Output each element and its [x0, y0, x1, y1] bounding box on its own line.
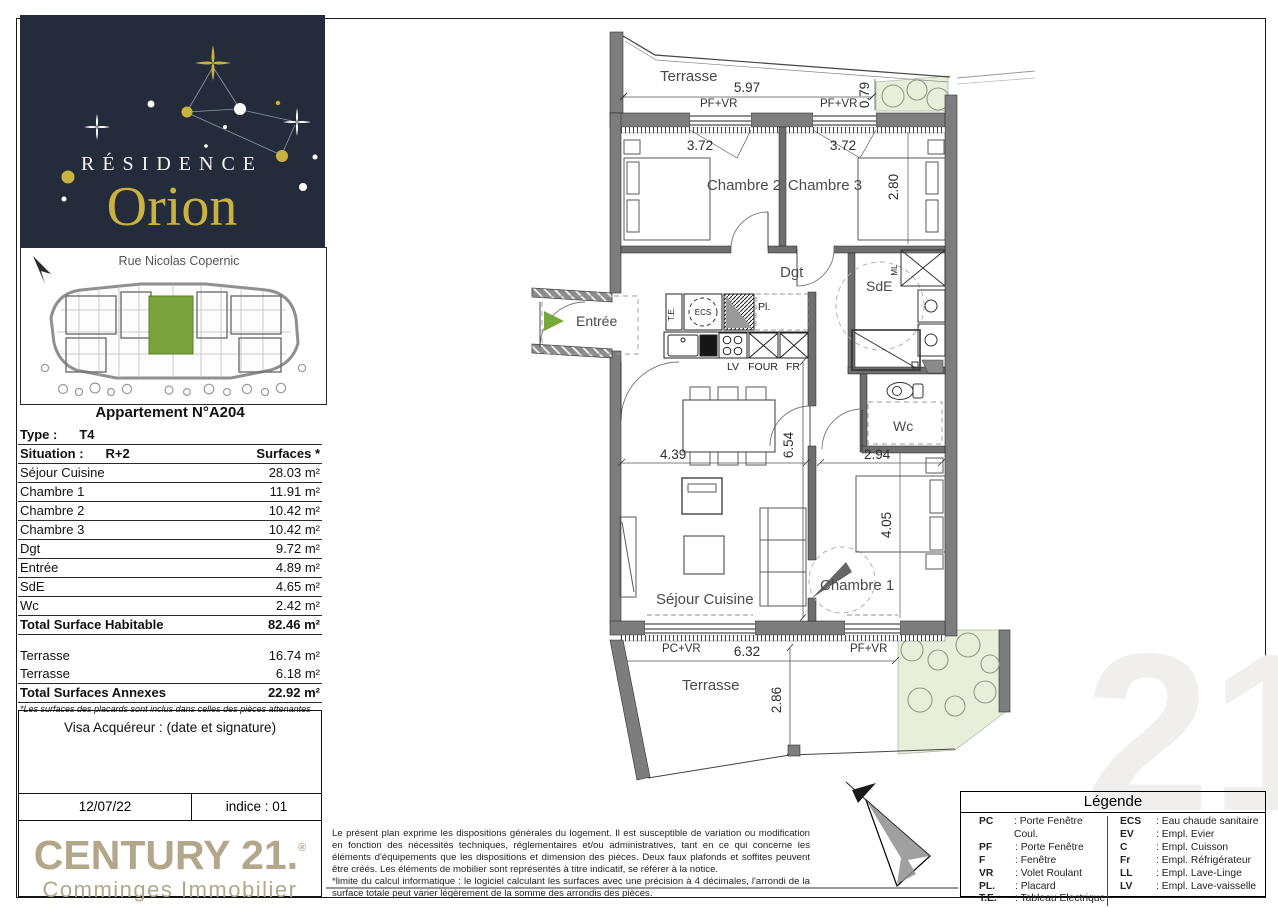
legend-abbr: ECS	[1120, 816, 1156, 829]
window-sill-bottom	[621, 635, 945, 641]
legend-desc: : Empl. Lave-vaisselle	[1156, 881, 1256, 894]
equipment-label-four: FOUR	[748, 361, 778, 373]
dim-lines	[618, 358, 945, 621]
legend-desc: : Placard	[1015, 881, 1056, 894]
window-sejour	[645, 615, 755, 635]
equipment-label-fr: FR	[786, 361, 800, 373]
legend-row: VR: Volet Roulant	[979, 868, 1107, 881]
dim-label: 0.79	[857, 82, 872, 108]
legend-title: Légende	[961, 792, 1265, 813]
sejour-furniture	[620, 387, 806, 606]
legend-row: PF: Porte Fenêtre	[979, 842, 1107, 855]
dim-label: 5.97	[734, 80, 760, 95]
legend: Légende PC: Porte Fenêtre Coul. PF: Port…	[960, 791, 1266, 897]
equipment-label-lv: LV	[727, 361, 739, 373]
room-label-chambre3: Chambre 3	[788, 177, 862, 194]
equipment-label-ml: ML	[890, 264, 899, 276]
room-label-entree: Entrée	[576, 313, 617, 329]
legend-abbr: F	[979, 855, 1015, 868]
legend-desc: : Porte Fenêtre Coul.	[1014, 816, 1107, 842]
room-label-sejour: Séjour Cuisine	[656, 591, 754, 608]
dim-label: 4.39	[660, 447, 686, 462]
legend-desc: : Empl. Evier	[1156, 829, 1214, 842]
legend-abbr: VR	[979, 868, 1015, 881]
legend-row: ECS: Eau chaude sanitaire	[1120, 816, 1260, 829]
legend-abbr: PC	[979, 816, 1014, 842]
opening-label: PF+VR	[700, 98, 737, 110]
equipment-label-ecs: ECS	[695, 308, 711, 317]
toilet-icon	[887, 383, 923, 400]
legend-desc: : Fenêtre	[1015, 855, 1056, 868]
legend-row: Fr: Empl. Réfrigérateur	[1120, 855, 1260, 868]
room-label-terrasse-bottom: Terrasse	[682, 677, 740, 694]
room-label-sde: SdE	[866, 278, 892, 294]
bed-chambre1	[856, 458, 945, 569]
dim-terrace-bottom	[620, 644, 899, 755]
legend-right-column: ECS: Eau chaude sanitaire EV: Empl. Evie…	[1107, 816, 1260, 906]
legend-abbr: EV	[1120, 829, 1156, 842]
window-chambre1	[845, 615, 900, 635]
planted-area-bottom	[898, 630, 1010, 754]
legend-row: PC: Porte Fenêtre Coul.	[979, 816, 1107, 842]
legend-row: LV: Empl. Lave-vaisselle	[1120, 881, 1260, 894]
opening-label: PF+VR	[850, 643, 887, 655]
room-label-dgt: Dgt	[780, 264, 804, 281]
equipment-label-te: T.E.	[667, 307, 676, 321]
legend-abbr: LV	[1120, 881, 1156, 894]
dim-label: 6.32	[734, 644, 760, 659]
legend-body: PC: Porte Fenêtre Coul. PF: Porte Fenêtr…	[961, 813, 1265, 906]
legend-row: EV: Empl. Evier	[1120, 829, 1260, 842]
opening-label: PC+VR	[662, 643, 701, 655]
north-arrow-icon	[846, 782, 930, 886]
legend-desc: : Empl. Cuisson	[1156, 842, 1228, 855]
legend-desc: : Volet Roulant	[1015, 868, 1082, 881]
dim-label: 6.54	[781, 431, 796, 458]
opening-label: PF+VR	[820, 98, 857, 110]
bed-chambre2	[624, 140, 710, 240]
legend-row: LL: Empl. Lave-Linge	[1120, 868, 1260, 881]
legend-desc: : Tableau Electrique	[1015, 893, 1105, 906]
dim-label: 3.72	[687, 138, 713, 153]
room-label-chambre1: Chambre 1	[820, 577, 894, 594]
room-label-chambre2: Chambre 2	[707, 177, 781, 194]
legend-desc: : Porte Fenêtre	[1015, 842, 1084, 855]
legend-abbr: T.E.	[979, 893, 1015, 906]
room-label-terrasse-top: Terrasse	[660, 68, 718, 85]
legend-abbr: C	[1120, 842, 1156, 855]
door-arcs	[621, 212, 924, 613]
dim-label: 2.80	[886, 174, 901, 200]
entree: Entrée	[532, 288, 638, 358]
legend-desc: : Eau chaude sanitaire	[1156, 816, 1258, 829]
legend-row: PL.: Placard	[979, 881, 1107, 894]
legend-desc: : Empl. Lave-Linge	[1156, 868, 1242, 881]
legend-row: F: Fenêtre	[979, 855, 1107, 868]
legend-left-column: PC: Porte Fenêtre Coul. PF: Porte Fenêtr…	[961, 816, 1107, 906]
dim-label: 2.86	[769, 687, 784, 713]
legend-desc: : Empl. Réfrigérateur	[1156, 855, 1251, 868]
legend-row: C: Empl. Cuisson	[1120, 842, 1260, 855]
floor-plan: Terrasse 5.97 0.79 PF+VR PF+VR	[0, 0, 1278, 908]
legend-abbr: PL.	[979, 881, 1015, 894]
legend-abbr: LL	[1120, 868, 1156, 881]
kitchen	[664, 294, 808, 358]
legend-abbr: Fr	[1120, 855, 1156, 868]
room-label-wc: Wc	[893, 418, 913, 434]
dim-label: 4.05	[879, 512, 894, 538]
dim-label: 2.94	[864, 447, 891, 462]
legend-row: T.E.: Tableau Electrique	[979, 893, 1107, 906]
dim-label: 3.72	[830, 138, 856, 153]
legend-abbr: PF	[979, 842, 1015, 855]
equipment-label-pl: Pl.	[758, 301, 770, 313]
bed-chambre3	[858, 140, 945, 240]
